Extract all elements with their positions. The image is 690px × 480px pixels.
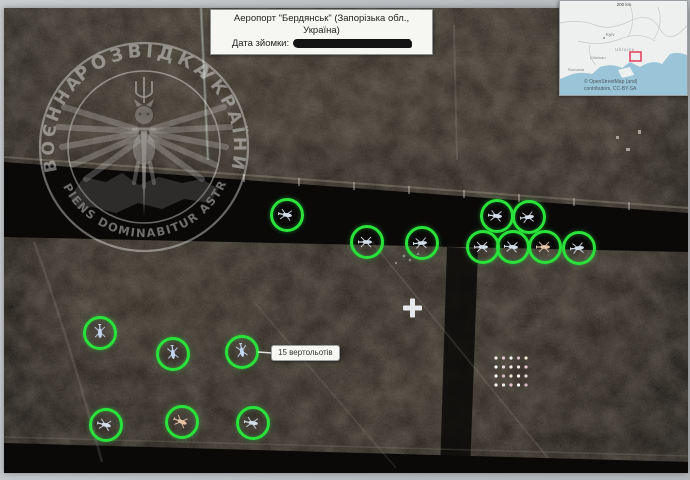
city2-label: Chisinau [590,55,606,60]
helicopter-icon [96,415,116,435]
country2-label: Romania [568,67,585,72]
city-label: Kyiv [606,32,615,37]
helicopter-icon [232,342,252,362]
helicopter-marker [466,230,500,264]
helicopter-marker [480,199,514,233]
helicopter-marker [156,337,190,371]
helicopter-icon [569,238,589,258]
helicopter-icon [172,412,192,432]
helicopter-marker [83,316,117,350]
helicopter-icon [163,344,183,364]
helicopter-icon [90,323,110,343]
helicopter-marker [562,231,596,265]
helicopter-marker [405,226,439,260]
helicopter-icon [277,205,297,225]
scale-label: 200 km [617,2,632,7]
helicopter-icon [243,413,263,433]
helicopter-count-label: 15 вертольотів [271,345,340,361]
helicopter-marker [496,230,530,264]
helicopter-marker [89,408,123,442]
helicopter-icon [519,207,539,227]
map-attribution-line1: © OpenStreetMap (and) [584,78,638,85]
helicopter-marker [528,230,562,264]
helicopter-marker [270,198,304,232]
inset-locator-map: Kyiv Ukraine Chisinau Romania 200 km © O… [559,0,688,96]
helicopter-icon [487,206,507,226]
helicopter-icon [535,237,555,257]
helicopter-icon [412,233,432,253]
helicopter-icon [503,237,523,257]
helicopter-icon [473,237,493,257]
helicopter-marker [225,335,259,369]
airport-title: Аеропорт "Бердянськ" (Запорізька обл., У… [215,13,428,37]
helicopter-marker [236,406,270,440]
date-label: Дата зйомки: [232,37,289,50]
reconnaissance-photo-screenshot: { "header": { "title": "Аеропорт \"Бердя… [0,0,690,480]
city-dot [603,37,605,39]
helicopter-marker [350,225,384,259]
helicopter-icon [357,232,377,252]
helicopter-marker [165,405,199,439]
redaction-bar [293,39,411,48]
helicopter-marker [512,200,546,234]
title-box: Аеропорт "Бердянськ" (Запорізька обл., У… [210,9,433,55]
map-attribution-line2: contributors, CC-BY-SA [584,86,637,92]
